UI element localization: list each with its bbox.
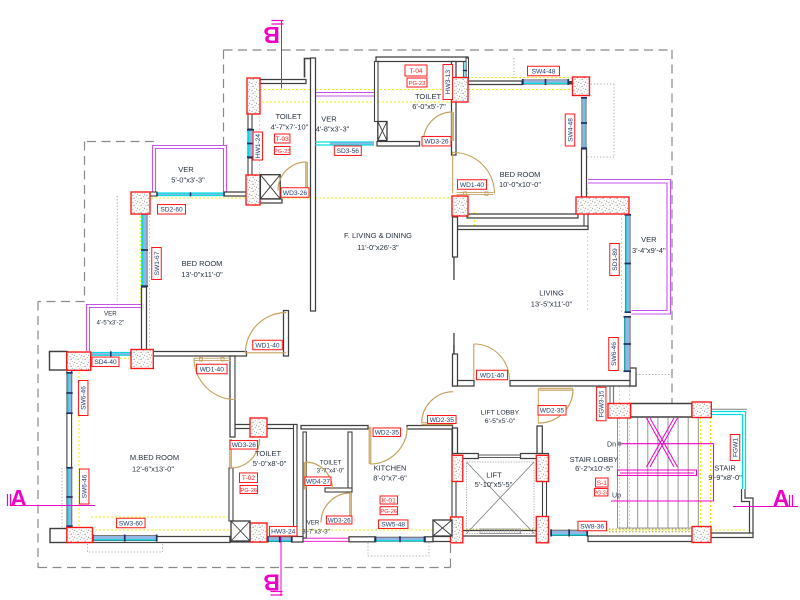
svg-text:12'-6"x13'-0": 12'-6"x13'-0": [132, 465, 174, 474]
svg-text:9'-9"x8'-0": 9'-9"x8'-0": [708, 473, 742, 482]
svg-text:WD4-27: WD4-27: [306, 479, 331, 486]
svg-text:T-03: T-03: [276, 136, 290, 143]
svg-text:SW5-48: SW5-48: [381, 522, 405, 529]
svg-text:TOILET: TOILET: [275, 112, 302, 121]
svg-text:SW8-36: SW8-36: [580, 523, 604, 530]
svg-text:13'-5"x11'-0": 13'-5"x11'-0": [531, 300, 573, 309]
svg-text:STAIR: STAIR: [714, 464, 736, 473]
svg-text:STAIR LOBBY: STAIR LOBBY: [570, 455, 619, 464]
svg-text:10'-0"x10'-0": 10'-0"x10'-0": [499, 180, 541, 189]
svg-text:FGW1: FGW1: [732, 438, 739, 457]
svg-text:SW1-67: SW1-67: [154, 251, 161, 275]
svg-text:HW3-24: HW3-24: [271, 529, 296, 536]
svg-text:SW4-48: SW4-48: [567, 118, 574, 142]
svg-text:VER: VER: [307, 520, 320, 527]
svg-text:5'-0"x8'-0": 5'-0"x8'-0": [253, 459, 287, 468]
svg-text:Up: Up: [612, 493, 621, 500]
svg-text:PG-26: PG-26: [380, 509, 397, 515]
svg-text:S-1: S-1: [597, 480, 608, 487]
svg-text:PG-23: PG-23: [274, 149, 291, 155]
svg-text:BED ROOM: BED ROOM: [500, 170, 541, 179]
svg-text:PG-26: PG-26: [240, 488, 257, 494]
svg-text:WD3-26: WD3-26: [328, 517, 351, 524]
svg-text:LIVING: LIVING: [539, 289, 564, 298]
svg-text:WD1-40: WD1-40: [460, 182, 485, 189]
svg-text:T-04: T-04: [409, 68, 423, 75]
svg-text:WD2-35: WD2-35: [430, 417, 455, 424]
svg-text:K-01: K-01: [382, 497, 396, 504]
svg-text:SW4-48: SW4-48: [532, 68, 556, 75]
svg-text:SD4-40: SD4-40: [94, 359, 117, 366]
svg-text:A: A: [773, 485, 790, 511]
svg-text:6'-0"x5'-7": 6'-0"x5'-7": [412, 102, 446, 111]
svg-text:WD3-26: WD3-26: [283, 190, 308, 197]
svg-text:M.BED ROOM: M.BED ROOM: [130, 453, 179, 462]
svg-text:T-02: T-02: [242, 475, 256, 482]
svg-text:LIFT LOBBY: LIFT LOBBY: [481, 410, 520, 417]
svg-text:PG-24: PG-24: [594, 491, 609, 497]
svg-text:TOILET: TOILET: [415, 92, 442, 101]
svg-text:6'-2"x10'-5": 6'-2"x10'-5": [575, 464, 613, 473]
svg-text:VER: VER: [104, 311, 117, 318]
svg-text:B: B: [263, 22, 280, 48]
svg-text:SW6-46: SW6-46: [611, 342, 618, 366]
svg-text:WD1-40: WD1-40: [200, 366, 225, 373]
svg-text:HW3-13: HW3-13: [445, 70, 452, 95]
svg-text:HW1-24: HW1-24: [255, 134, 262, 159]
svg-text:4'-7"x7'-10": 4'-7"x7'-10": [271, 123, 309, 132]
svg-text:4'-8"x3'-3": 4'-8"x3'-3": [316, 125, 350, 134]
svg-text:WD1-40: WD1-40: [255, 342, 280, 349]
svg-text:5'-10"x5'-5": 5'-10"x5'-5": [475, 480, 513, 489]
svg-text:Dn: Dn: [607, 442, 616, 449]
svg-text:VER: VER: [178, 165, 194, 174]
svg-text:KITCHEN: KITCHEN: [374, 464, 407, 473]
svg-text:13'-0"x11'-0": 13'-0"x11'-0": [181, 270, 223, 279]
svg-text:8'-0"x7'-6": 8'-0"x7'-6": [373, 474, 407, 483]
svg-text:SD2-60: SD2-60: [160, 207, 183, 214]
svg-text:WD2-35: WD2-35: [540, 408, 565, 415]
svg-text:11'-0"x26'-3": 11'-0"x26'-3": [357, 243, 399, 252]
svg-text:VER: VER: [641, 235, 657, 244]
svg-text:5'-0"x3'-3": 5'-0"x3'-3": [171, 176, 205, 185]
svg-text:TOILET: TOILET: [255, 449, 282, 458]
svg-text:WD3-26: WD3-26: [232, 442, 257, 449]
svg-text:F. LIVING & DINING: F. LIVING & DINING: [344, 231, 412, 240]
svg-text:WD1-40: WD1-40: [480, 372, 505, 379]
svg-text:SW3-60: SW3-60: [119, 520, 143, 527]
svg-text:A: A: [10, 485, 27, 511]
svg-text:WD2-35: WD2-35: [375, 430, 400, 437]
svg-text:3'-4"x9'-4": 3'-4"x9'-4": [632, 246, 666, 255]
svg-text:LIFT: LIFT: [486, 471, 502, 480]
svg-text:WD3-26: WD3-26: [424, 139, 449, 146]
svg-text:3'-7"x3'-3": 3'-7"x3'-3": [302, 529, 330, 536]
svg-text:SW6-46: SW6-46: [82, 474, 89, 498]
svg-text:3'-7"x4'-0": 3'-7"x4'-0": [317, 468, 345, 475]
svg-text:VER: VER: [321, 115, 337, 124]
svg-text:6'-5"x5'-0": 6'-5"x5'-0": [485, 418, 516, 425]
svg-text:TOILET: TOILET: [320, 460, 342, 467]
svg-text:4'-5"x3'-2": 4'-5"x3'-2": [97, 320, 125, 327]
svg-text:FGW3-15: FGW3-15: [599, 390, 606, 417]
svg-text:SD3-56: SD3-56: [337, 148, 360, 155]
svg-text:SD1-89: SD1-89: [612, 248, 619, 271]
svg-text:SW6-46: SW6-46: [81, 386, 88, 410]
svg-text:B: B: [263, 570, 280, 596]
svg-text:BED ROOM: BED ROOM: [182, 259, 223, 268]
svg-text:PG-23: PG-23: [409, 81, 426, 87]
